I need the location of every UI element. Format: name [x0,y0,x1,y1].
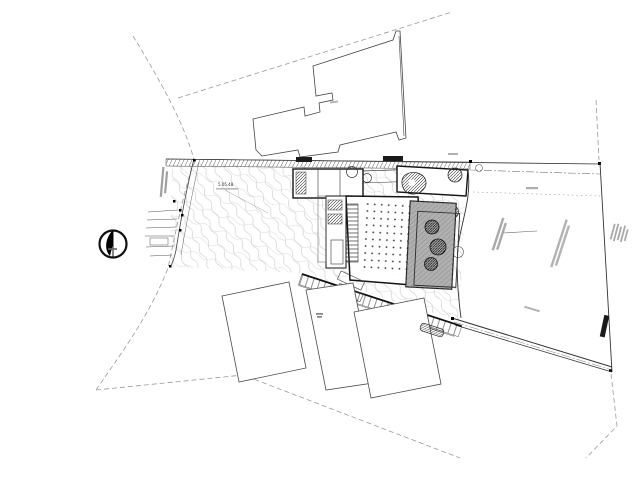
site-plan-canvas: 5.05.48 [0,0,640,480]
illegible-annotation [492,218,509,252]
boundary-label-box [296,157,312,162]
leader-line [503,231,537,233]
tree-circle [425,220,439,234]
site-plan-drawing: 5.05.48 [0,0,640,480]
court-rectangle-left [222,282,306,382]
tree-circle [448,168,462,182]
illegible-annotation [526,187,538,189]
illegible-annotation [108,248,117,250]
tree-circle [425,258,438,271]
wall-hatch [328,214,342,224]
boundary-label-box [383,156,403,161]
right-field-annotations [492,187,630,269]
tree-circle [476,165,483,172]
north-arrow-icon [100,230,127,258]
site-bottom-right-boundary [451,306,612,372]
illegible-annotation [609,223,629,244]
site-right-boundary [600,163,612,372]
wall-hatch [296,172,306,194]
boundary-label-box [600,315,609,338]
illegible-street-name [160,167,169,197]
wall-hatch [328,200,342,210]
terrace-dot-grid [358,201,412,276]
stairs [346,204,358,262]
illegible-annotation [550,219,572,269]
illegible-annotation [524,306,540,313]
elevation-note-text: 5.05.48 [218,182,234,187]
illegible-annotation [216,188,238,190]
illegible-annotation [448,153,458,155]
tree-circle [430,239,446,255]
existing-building-outline [253,31,406,157]
